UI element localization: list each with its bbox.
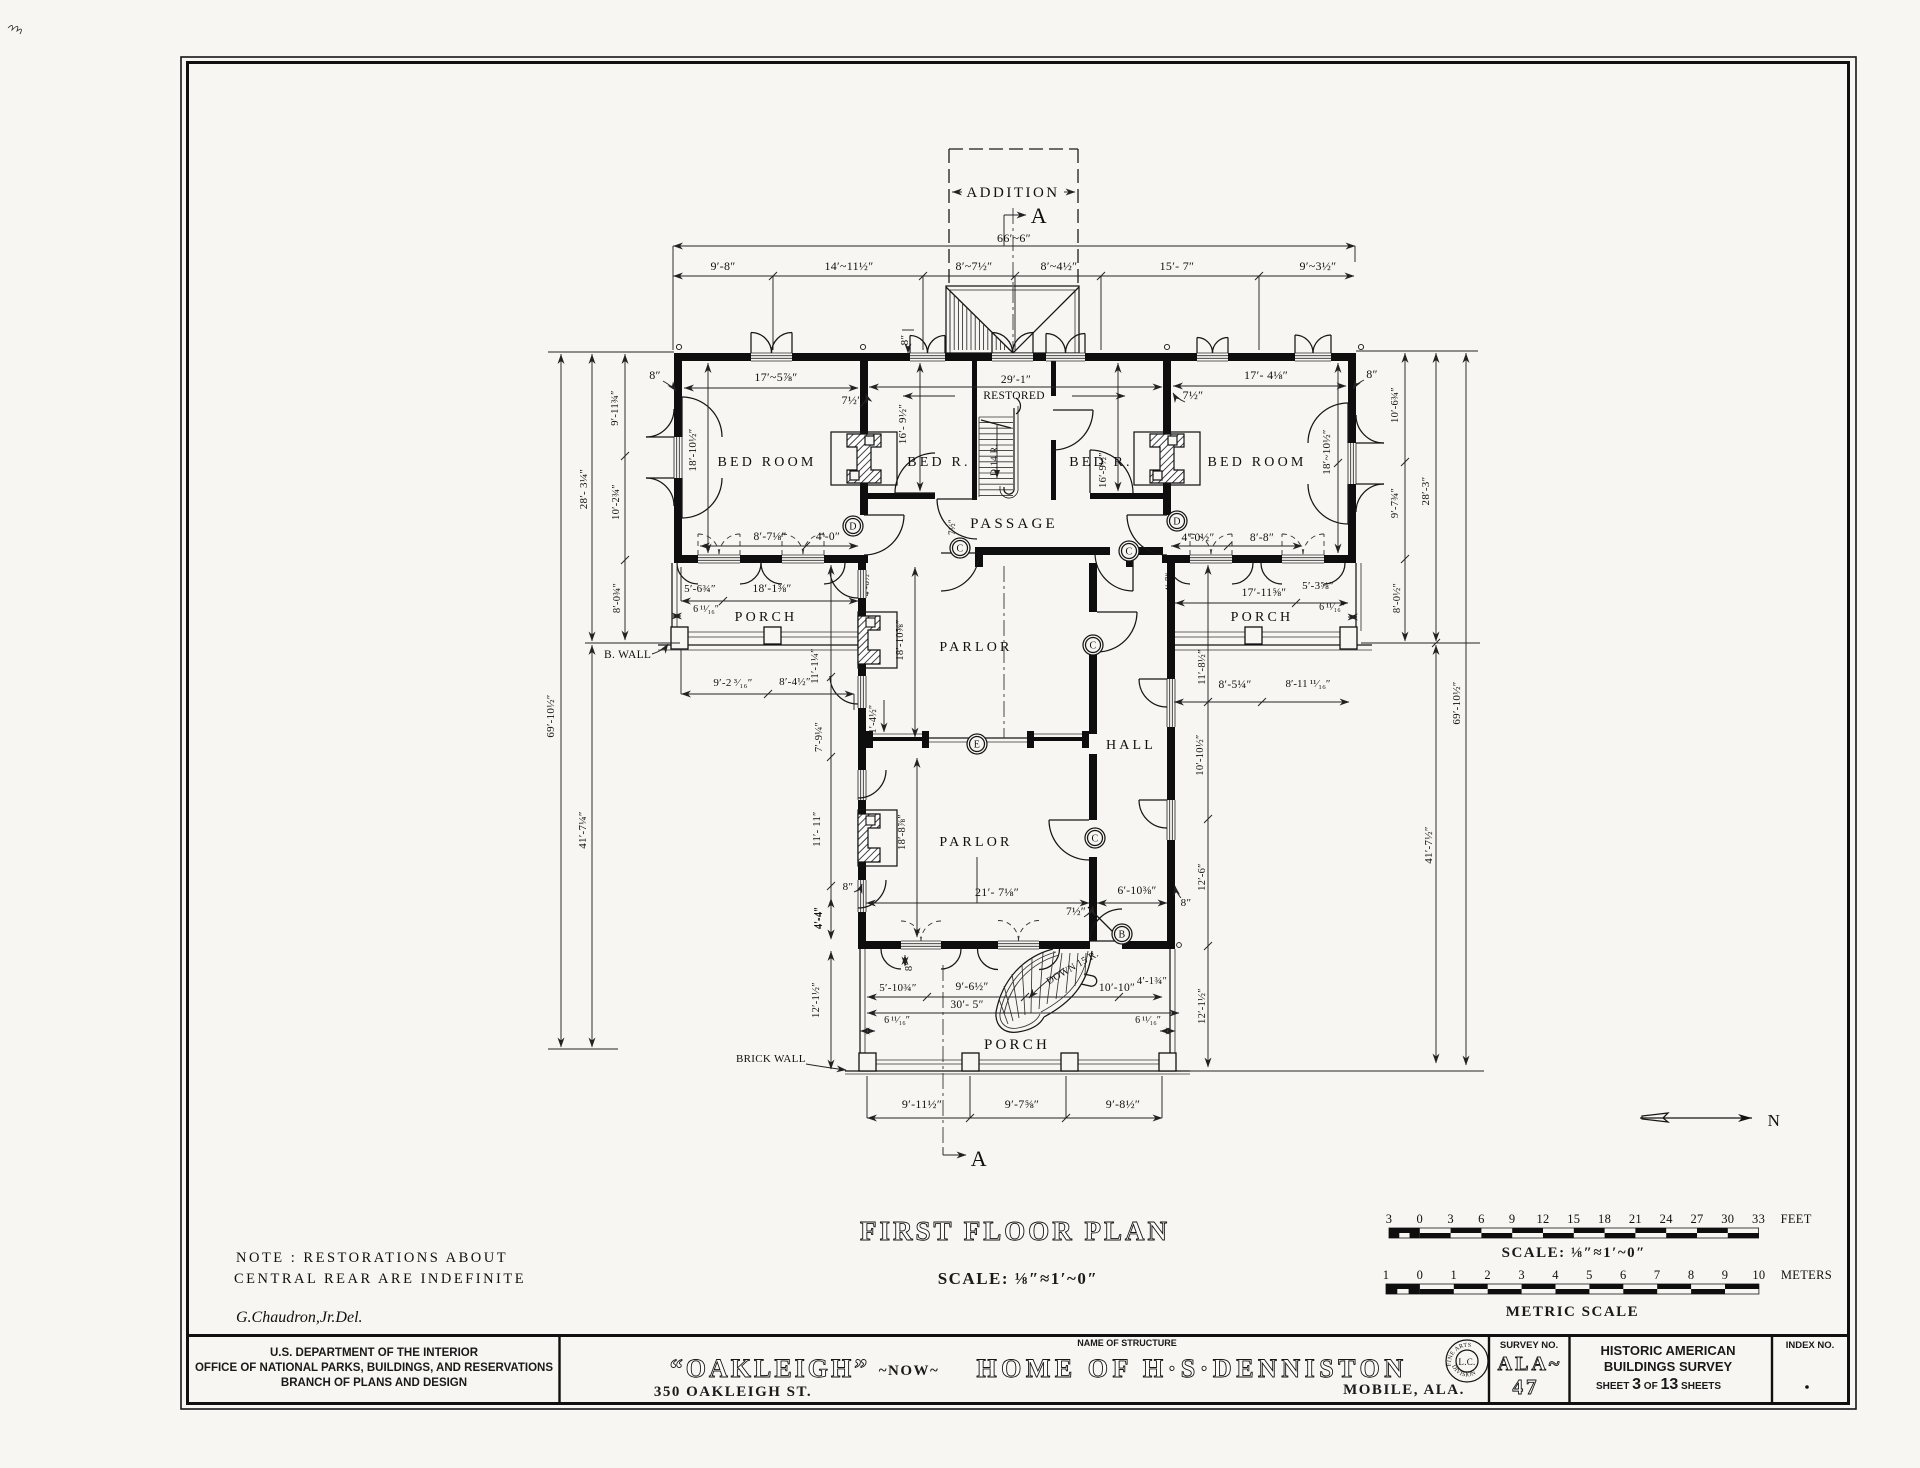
svg-text:28′-3″: 28′-3″ [1420,477,1432,506]
svg-text:METRIC SCALE: METRIC SCALE [1506,1304,1639,1320]
svg-text:12′-1½″: 12′-1½″ [1197,988,1208,1024]
svg-text:RESTORED: RESTORED [983,390,1045,402]
svg-text:9′-6½″: 9′-6½″ [955,981,988,993]
svg-text:ADDITION: ADDITION [966,185,1059,201]
svg-text:18′~10½″: 18′~10½″ [1321,429,1333,475]
svg-text:350 OAKLEIGH ST.: 350 OAKLEIGH ST. [654,1384,812,1400]
svg-text:18′-10½″: 18′-10½″ [687,428,699,471]
svg-text:PORCH: PORCH [735,610,798,625]
svg-text:5′-6¾″: 5′-6¾″ [684,583,716,595]
svg-text:BRANCH OF PLANS AND DESIGN: BRANCH OF PLANS AND DESIGN [281,1377,467,1389]
svg-text:D: D [1173,517,1181,528]
svg-text:MOBILE, ALA.: MOBILE, ALA. [1343,1382,1465,1398]
svg-text:10′-10½″: 10′-10½″ [1195,734,1206,775]
svg-text:BUILDINGS SURVEY: BUILDINGS SURVEY [1604,1359,1733,1374]
svg-text:A: A [971,1146,989,1171]
svg-text:PASSAGE: PASSAGE [970,516,1058,532]
svg-text:9′-7⅝″: 9′-7⅝″ [1005,1097,1039,1111]
svg-text:41′-7½″: 41′-7½″ [1423,826,1435,864]
svg-text:1: 1 [1451,1268,1458,1282]
svg-text:BRICK WALL: BRICK WALL [736,1053,806,1065]
svg-text:C: C [957,544,964,555]
svg-text:“OAKLEIGH”: “OAKLEIGH” [670,1354,870,1383]
svg-text:10: 10 [1752,1268,1765,1282]
svg-text:8″: 8″ [1366,367,1378,381]
svg-text:11′- 11″: 11′- 11″ [812,811,823,846]
svg-text:21: 21 [1629,1212,1642,1226]
svg-text:PORCH: PORCH [984,1037,1050,1053]
svg-text:7½″: 7½″ [1183,388,1204,402]
svg-text:8′-8″: 8′-8″ [1250,532,1274,544]
svg-text:ALA~: ALA~ [1498,1353,1563,1375]
svg-text:9: 9 [1509,1212,1516,1226]
svg-text:4′-4″: 4′-4″ [813,907,824,929]
svg-text:D: D [849,522,857,533]
svg-text:47: 47 [1513,1375,1540,1399]
svg-text:18: 18 [1598,1212,1611,1226]
svg-text:29′-1″: 29′-1″ [1001,374,1031,386]
svg-text:BED ROOM: BED ROOM [717,455,816,470]
svg-text:12′-6″: 12′-6″ [1197,863,1208,891]
svg-text:30′- 5″: 30′- 5″ [950,999,983,1011]
svg-text:7½″: 7½″ [947,519,957,535]
svg-text:NOTE : RESTORATIONS ABOUT: NOTE : RESTORATIONS ABOUT [236,1250,508,1266]
svg-text:B: B [1119,930,1126,941]
svg-text:~NOW~: ~NOW~ [879,1363,940,1379]
svg-text:10′-2¾″: 10′-2¾″ [611,484,622,520]
svg-text:8′-5¼″: 8′-5¼″ [1218,679,1251,691]
svg-text:11′-1¼″: 11′-1¼″ [810,648,821,684]
svg-text:14′~11½″: 14′~11½″ [824,259,873,273]
svg-text:3: 3 [1518,1268,1525,1282]
svg-text:FIRST FLOOR PLAN: FIRST FLOOR PLAN [860,1216,1170,1246]
svg-text:9′-8½″: 9′-8½″ [1106,1097,1140,1111]
svg-text:9′-11½″: 9′-11½″ [902,1097,942,1111]
svg-text:N: N [1768,1111,1783,1130]
svg-text:7: 7 [1654,1268,1661,1282]
svg-text:69′-10½″: 69′-10½″ [545,694,557,737]
svg-text:1′-4½″: 1′-4½″ [868,705,879,734]
svg-text:SURVEY NO.: SURVEY NO. [1500,1340,1558,1351]
svg-text:0: 0 [1417,1268,1424,1282]
svg-text:SCALE: ⅛″≈1′~0″: SCALE: ⅛″≈1′~0″ [938,1269,1099,1288]
svg-text:4′-1¾″: 4′-1¾″ [1137,976,1167,987]
svg-text:BED ROOM: BED ROOM [1207,455,1306,470]
svg-text:9′-8″: 9′-8″ [710,259,735,273]
svg-text:FEET: FEET [1781,1212,1812,1226]
svg-text:C: C [1090,641,1097,652]
svg-text:C: C [1092,834,1099,845]
svg-text:SCALE: ⅛″≈1′~0″: SCALE: ⅛″≈1′~0″ [1502,1245,1646,1261]
svg-text:12′-1½″: 12′-1½″ [811,982,822,1018]
svg-text:8: 8 [1688,1268,1695,1282]
svg-text:PARLOR: PARLOR [939,835,1012,850]
svg-text:17′~5⅞″: 17′~5⅞″ [754,370,797,384]
svg-text:6: 6 [1478,1212,1485,1226]
svg-text:7′-9¼″: 7′-9¼″ [814,722,825,752]
svg-text:7½″: 7½″ [1066,906,1086,918]
svg-text:5′-3⅝″: 5′-3⅝″ [1302,580,1334,592]
svg-text:8′-11 ¹¹⁄₁₆″: 8′-11 ¹¹⁄₁₆″ [1285,678,1330,690]
svg-text:8″: 8″ [843,881,854,893]
svg-text:16′- 9½″: 16′- 9½″ [897,404,909,445]
svg-text:U.S. DEPARTMENT OF THE INTERIO: U.S. DEPARTMENT OF THE INTERIOR [270,1347,479,1359]
svg-text:6′-10⅜″: 6′-10⅜″ [1117,885,1156,897]
svg-text:6 ¹¹⁄₁₆″: 6 ¹¹⁄₁₆″ [884,1015,910,1026]
svg-text:5′-10¾″: 5′-10¾″ [879,982,917,994]
svg-text:PARLOR: PARLOR [939,640,1012,655]
svg-text:21′- 7⅛″: 21′- 7⅛″ [975,885,1019,899]
svg-text:18′-10⅝″: 18′-10⅝″ [895,619,906,660]
svg-text:6: 6 [1620,1268,1627,1282]
svg-text:6 ¹¹⁄₁₆″: 6 ¹¹⁄₁₆″ [1135,1015,1161,1026]
svg-text:9′~3½″: 9′~3½″ [1300,259,1337,273]
svg-text:9′-2 ³⁄₁₆″: 9′-2 ³⁄₁₆″ [713,677,752,689]
svg-text:6 ¹¹⁄₁₆″: 6 ¹¹⁄₁₆″ [1319,602,1345,613]
svg-text:66′~6″: 66′~6″ [997,231,1031,245]
svg-text:28′- 3¼″: 28′- 3¼″ [578,469,590,510]
svg-text:8′~7½″: 8′~7½″ [956,259,993,273]
svg-text:3: 3 [1447,1212,1454,1226]
svg-text:CENTRAL REAR ARE INDEFINITE: CENTRAL REAR ARE INDEFINITE [234,1271,526,1287]
svg-text:8′-7⅛″: 8′-7⅛″ [753,531,786,543]
svg-text:27: 27 [1690,1212,1703,1226]
svg-text:33: 33 [1752,1212,1765,1226]
svg-text:24: 24 [1660,1212,1674,1226]
svg-text:E: E [974,740,980,751]
svg-text:10′-6¾″: 10′-6¾″ [1390,387,1401,423]
svg-text:8′~4½″: 8′~4½″ [1041,259,1078,273]
svg-text:A: A [1031,203,1049,228]
svg-text:HISTORIC AMERICAN: HISTORIC AMERICAN [1600,1343,1735,1358]
svg-text:9′-7¾″: 9′-7¾″ [1390,488,1401,518]
svg-text:4: 4 [1552,1268,1559,1282]
svg-text:11′-8½″: 11′-8½″ [1197,649,1208,685]
svg-text:16′-9½″: 16′-9½″ [1098,452,1109,488]
svg-text:B. WALL: B. WALL [604,649,651,661]
svg-text:HOME OF H·S·DENNISTON: HOME OF H·S·DENNISTON [976,1354,1407,1383]
svg-text:69′-10½″: 69′-10½″ [1451,681,1463,724]
svg-text:15′- 7″: 15′- 7″ [1160,259,1195,273]
svg-text:METERS: METERS [1781,1268,1832,1282]
svg-text:12: 12 [1536,1212,1549,1226]
svg-text:HALL: HALL [1106,738,1156,753]
svg-text:6 ¹¹⁄₁₆″: 6 ¹¹⁄₁₆″ [693,604,719,615]
svg-text:C: C [1126,547,1133,558]
svg-text:2: 2 [1484,1268,1491,1282]
svg-text:NAME OF STRUCTURE: NAME OF STRUCTURE [1077,1338,1177,1348]
svg-text:17′- 4⅛″: 17′- 4⅛″ [1244,368,1288,382]
svg-text:OFFICE OF NATIONAL PARKS, BUIL: OFFICE OF NATIONAL PARKS, BUILDINGS, AND… [195,1362,553,1374]
svg-text:8″: 8″ [904,961,915,971]
svg-text:18′-8⅞″: 18′-8⅞″ [897,814,908,850]
svg-text:4′-0″: 4′-0″ [816,531,840,543]
svg-text:15: 15 [1567,1212,1580,1226]
svg-text:10′-10″: 10′-10″ [1099,982,1135,994]
svg-text:G.Chaudron,Jr.Del.: G.Chaudron,Jr.Del. [236,1309,363,1326]
svg-text:17′-11⅝″: 17′-11⅝″ [1242,587,1287,599]
svg-text:8′-0¾″: 8′-0¾″ [612,583,623,613]
svg-text:5: 5 [1586,1268,1593,1282]
svg-text:8′-0½″: 8′-0½″ [1392,583,1403,613]
svg-text:8″: 8″ [899,335,911,346]
svg-text:41′-7¼″: 41′-7¼″ [577,811,589,849]
svg-text:3: 3 [1386,1212,1393,1226]
svg-text:0: 0 [1417,1212,1424,1226]
svg-text:INDEX NO.: INDEX NO. [1786,1340,1835,1351]
svg-text:8″: 8″ [1181,897,1192,909]
svg-text:PORCH: PORCH [1231,610,1294,625]
svg-text:9: 9 [1722,1268,1729,1282]
svg-text:1: 1 [1383,1268,1390,1282]
svg-text:4′-0½″: 4′-0½″ [1181,532,1214,544]
svg-text:L.C.: L.C. [1458,1357,1475,1367]
svg-text:18′-1⅜″: 18′-1⅜″ [752,583,791,595]
svg-text:7½″: 7½″ [842,393,863,407]
svg-text:8′-4½″: 8′-4½″ [779,676,811,688]
svg-text:9′-11¾″: 9′-11¾″ [610,390,621,426]
svg-text:8″: 8″ [649,368,661,382]
svg-text:30: 30 [1721,1212,1734,1226]
